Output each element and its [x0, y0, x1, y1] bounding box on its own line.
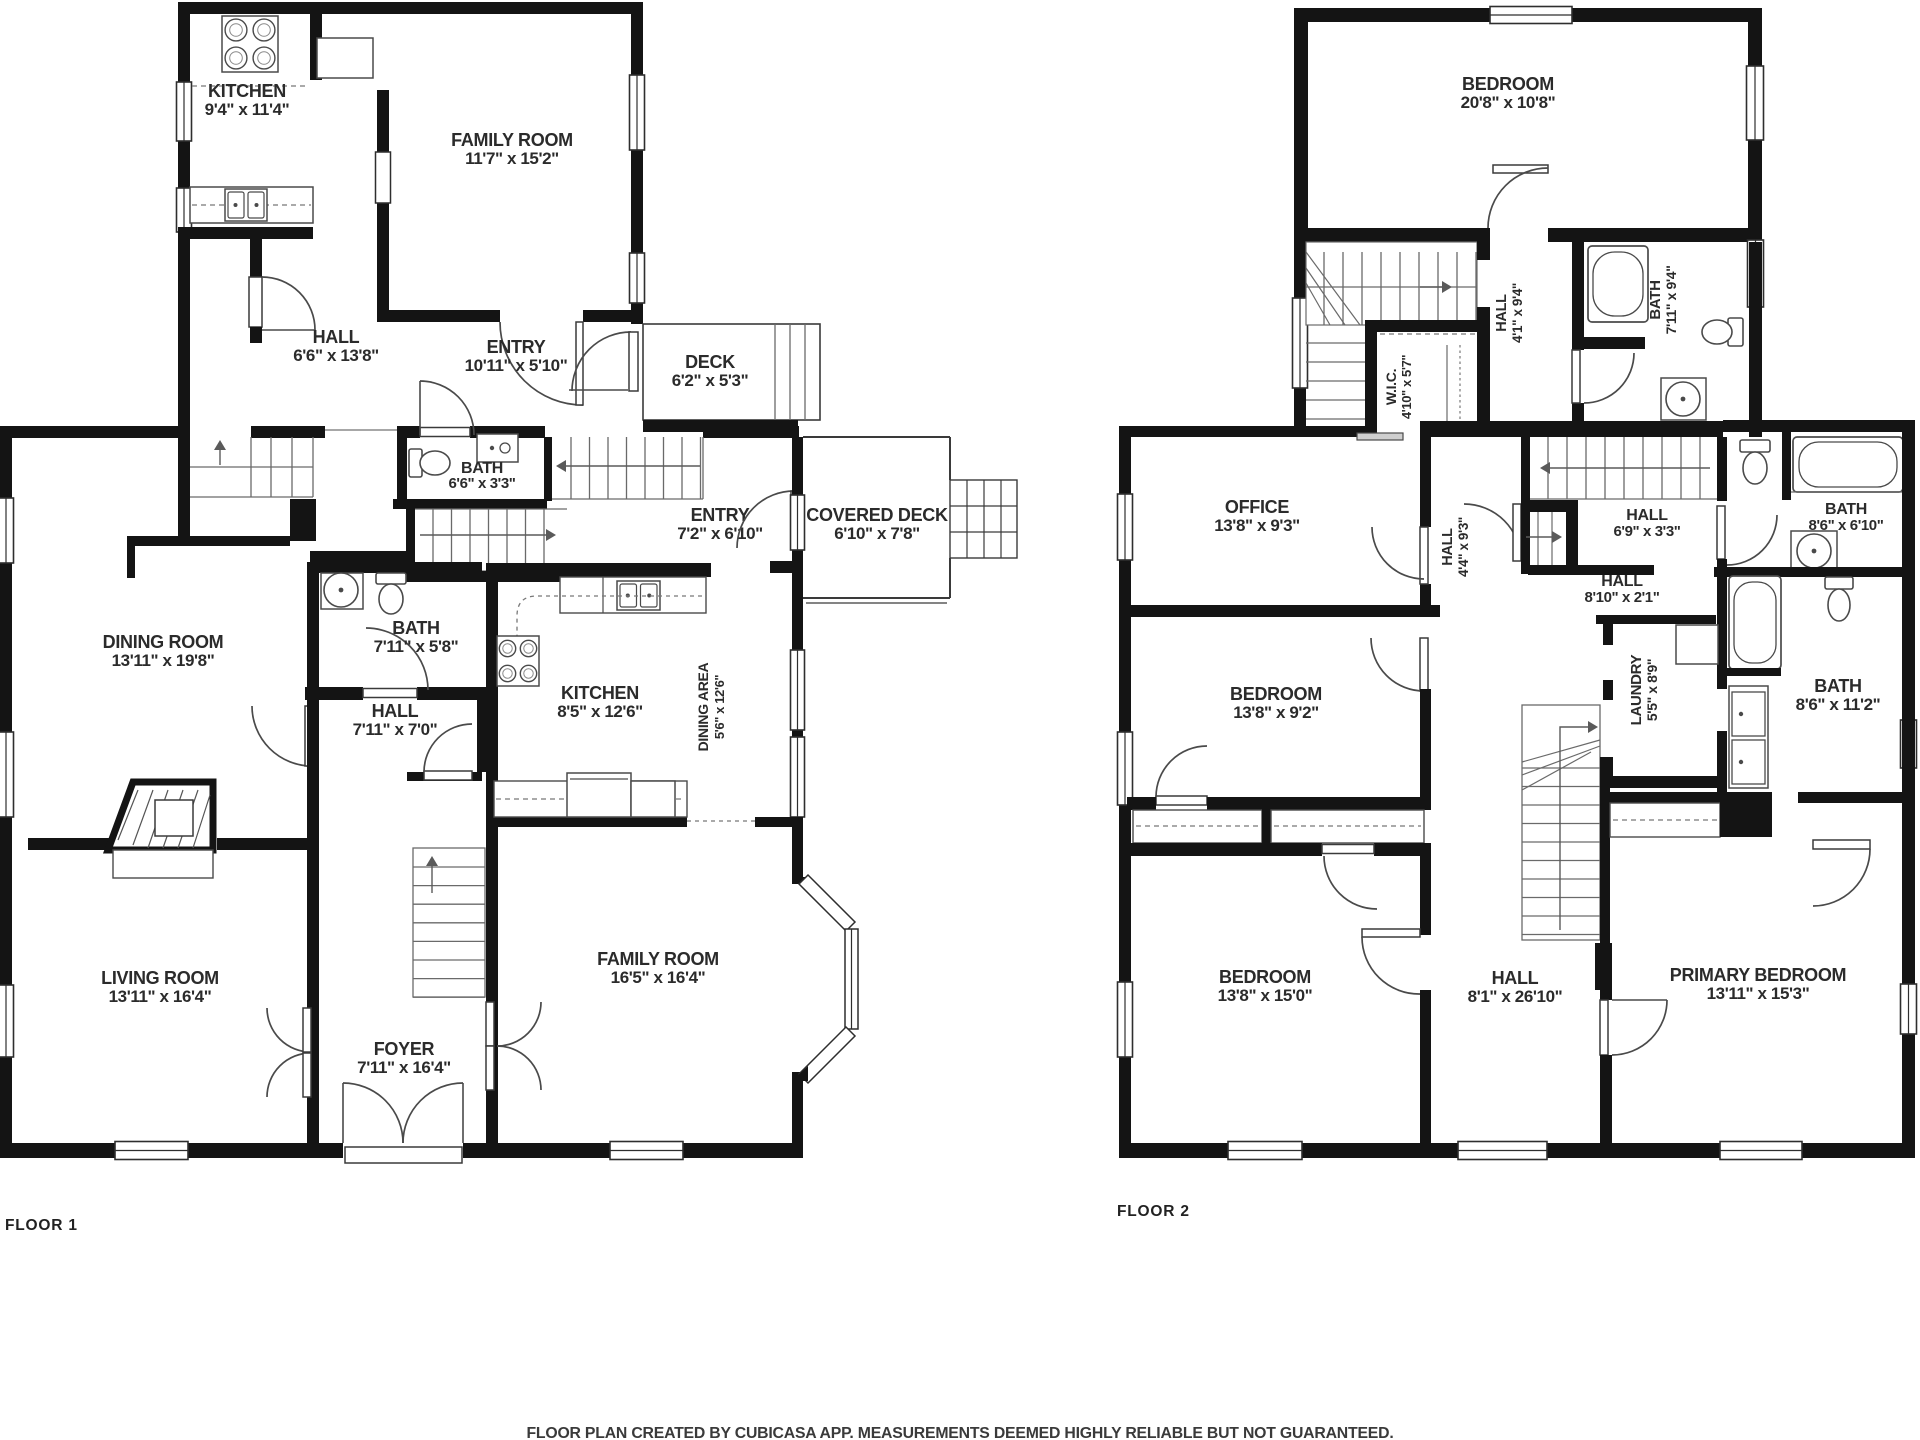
svg-text:HALL: HALL [372, 701, 419, 721]
svg-text:16'5" x 16'4": 16'5" x 16'4" [611, 968, 706, 987]
svg-text:7'11" x 7'0": 7'11" x 7'0" [353, 720, 438, 739]
svg-text:PRIMARY BEDROOM: PRIMARY BEDROOM [1670, 965, 1847, 985]
svg-text:5'6" x 12'6": 5'6" x 12'6" [712, 675, 727, 740]
svg-text:HALL: HALL [1601, 573, 1643, 590]
svg-text:6'10" x 7'8": 6'10" x 7'8" [834, 524, 920, 543]
svg-text:ENTRY: ENTRY [487, 337, 546, 357]
svg-text:BEDROOM: BEDROOM [1219, 967, 1311, 987]
svg-text:7'11" x 9'4": 7'11" x 9'4" [1663, 266, 1679, 335]
svg-text:6'9" x 3'3": 6'9" x 3'3" [1613, 523, 1680, 540]
svg-text:HALL: HALL [1494, 294, 1510, 332]
svg-text:13'11" x 15'3": 13'11" x 15'3" [1707, 984, 1810, 1003]
svg-text:COVERED DECK: COVERED DECK [806, 505, 948, 525]
svg-text:7'11" x 16'4": 7'11" x 16'4" [357, 1058, 451, 1077]
svg-text:FLOOR 1: FLOOR 1 [5, 1217, 78, 1234]
svg-text:HALL: HALL [1626, 507, 1668, 524]
svg-text:8'1" x 26'10": 8'1" x 26'10" [1468, 987, 1563, 1006]
svg-text:13'8" x 15'0": 13'8" x 15'0" [1218, 986, 1313, 1005]
svg-text:11'7" x 15'2": 11'7" x 15'2" [465, 149, 559, 168]
svg-text:4'4" x 9'3": 4'4" x 9'3" [1456, 517, 1471, 577]
svg-text:HALL: HALL [313, 327, 360, 347]
svg-text:BATH: BATH [1814, 676, 1861, 696]
svg-text:6'2" x 5'3": 6'2" x 5'3" [672, 371, 749, 390]
svg-text:OFFICE: OFFICE [1225, 497, 1289, 517]
svg-text:KITCHEN: KITCHEN [208, 81, 286, 101]
svg-text:HALL: HALL [1492, 968, 1539, 988]
svg-text:BATH: BATH [1647, 280, 1664, 319]
svg-text:20'8" x 10'8": 20'8" x 10'8" [1461, 93, 1556, 112]
svg-text:13'11" x 16'4": 13'11" x 16'4" [109, 987, 212, 1006]
svg-text:FAMILY ROOM: FAMILY ROOM [451, 130, 573, 150]
svg-text:4'10" x 5'7": 4'10" x 5'7" [1399, 355, 1414, 420]
svg-text:W.I.C.: W.I.C. [1383, 369, 1399, 405]
svg-text:BATH: BATH [392, 618, 439, 638]
svg-text:6'6" x 3'3": 6'6" x 3'3" [448, 475, 515, 492]
svg-text:FLOOR 2: FLOOR 2 [1117, 1203, 1190, 1220]
svg-text:8'10" x 2'1": 8'10" x 2'1" [1585, 589, 1660, 606]
svg-text:BEDROOM: BEDROOM [1462, 74, 1554, 94]
svg-text:7'2" x 6'10": 7'2" x 6'10" [677, 524, 763, 543]
svg-text:13'8" x 9'3": 13'8" x 9'3" [1214, 516, 1300, 535]
svg-text:FLOOR PLAN CREATED BY CUBICASA: FLOOR PLAN CREATED BY CUBICASA APP. MEAS… [526, 1425, 1393, 1440]
svg-text:BATH: BATH [1825, 501, 1867, 518]
svg-text:10'11" x 5'10": 10'11" x 5'10" [465, 356, 568, 375]
svg-text:8'6" x 6'10": 8'6" x 6'10" [1809, 517, 1884, 534]
svg-text:13'8" x 9'2": 13'8" x 9'2" [1233, 703, 1319, 722]
svg-text:LAUNDRY: LAUNDRY [1628, 654, 1645, 725]
svg-text:HALL: HALL [1440, 528, 1456, 566]
svg-text:7'11" x 5'8": 7'11" x 5'8" [374, 637, 459, 656]
svg-text:KITCHEN: KITCHEN [561, 683, 639, 703]
svg-text:9'4" x 11'4": 9'4" x 11'4" [205, 100, 290, 119]
svg-text:FAMILY ROOM: FAMILY ROOM [597, 949, 719, 969]
svg-text:6'6" x 13'8": 6'6" x 13'8" [293, 346, 379, 365]
svg-text:BEDROOM: BEDROOM [1230, 684, 1322, 704]
svg-text:ENTRY: ENTRY [691, 505, 750, 525]
svg-text:FOYER: FOYER [374, 1039, 435, 1059]
svg-text:DINING AREA: DINING AREA [695, 662, 711, 751]
svg-text:8'6" x 11'2": 8'6" x 11'2" [1796, 695, 1881, 714]
svg-text:LIVING ROOM: LIVING ROOM [101, 968, 219, 988]
svg-text:5'5" x 8'9": 5'5" x 8'9" [1644, 659, 1660, 721]
svg-text:8'5" x 12'6": 8'5" x 12'6" [557, 702, 643, 721]
svg-text:13'11" x 19'8": 13'11" x 19'8" [112, 651, 215, 670]
svg-text:4'1" x 9'4": 4'1" x 9'4" [1510, 283, 1525, 343]
svg-text:DECK: DECK [685, 352, 735, 372]
svg-text:DINING ROOM: DINING ROOM [103, 632, 224, 652]
